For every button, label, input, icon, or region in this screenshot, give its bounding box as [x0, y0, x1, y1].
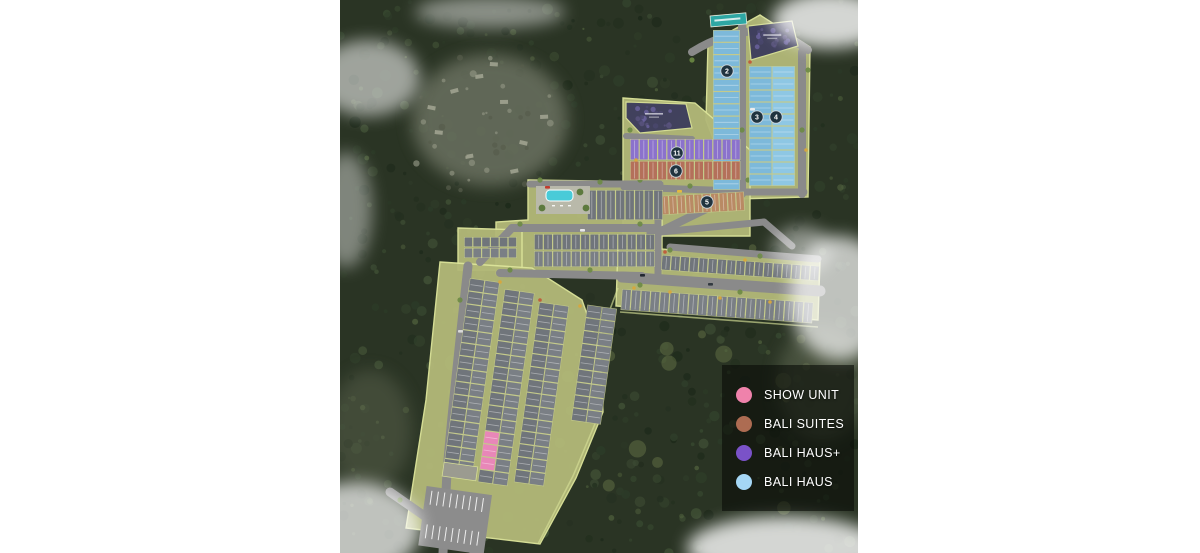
- house-unit: [509, 249, 517, 258]
- street-tree: [667, 247, 672, 252]
- house-unit: [491, 249, 499, 258]
- street-tree: [737, 289, 742, 294]
- block-number-badge: 11: [671, 147, 683, 159]
- shrub: [663, 250, 667, 254]
- legend-label: BALI HAUS+: [764, 446, 841, 460]
- street-tree: [687, 183, 692, 188]
- shrub: [718, 296, 722, 300]
- show-unit-swatch-icon: [736, 387, 752, 403]
- pool-area: [536, 186, 590, 214]
- block-number-badge: 5: [701, 196, 713, 208]
- legend-item-bali-haus-plus: BALI HAUS+: [736, 445, 854, 461]
- row-west-block-row-2: [464, 248, 517, 258]
- row-bali-suites-row: [630, 161, 740, 180]
- house-unit: [509, 238, 517, 247]
- street-tree: [507, 267, 512, 272]
- block-number-badge: 4: [770, 111, 782, 123]
- legend-item-show-unit: SHOW UNIT: [736, 387, 854, 403]
- swimming-pool: [546, 190, 573, 201]
- street-tree: [739, 127, 744, 132]
- legend-label: BALI SUITES: [764, 417, 844, 431]
- street-tree: [805, 67, 810, 72]
- illegible-parcel-label: [763, 34, 781, 36]
- street-tree: [637, 282, 642, 287]
- block-number-label: 6: [674, 168, 678, 175]
- pool-tree: [539, 205, 546, 212]
- legend-label: BALI HAUS: [764, 475, 833, 489]
- house-unit: [465, 249, 473, 258]
- house-unit: [482, 238, 490, 247]
- shrub: [634, 158, 638, 162]
- bali-suites-swatch-icon: [736, 416, 752, 432]
- block-number-badge: 2: [721, 65, 733, 77]
- house-unit: [500, 238, 508, 247]
- block-number-label: 5: [705, 199, 709, 206]
- house-unit: [482, 249, 490, 258]
- street-tree: [627, 127, 632, 132]
- bali-haus-plus-swatch-icon: [736, 445, 752, 461]
- street-tree: [799, 127, 804, 132]
- street-tree: [597, 179, 602, 184]
- shrub: [804, 148, 808, 152]
- car: [750, 108, 755, 111]
- legend-item-bali-haus: BALI HAUS: [736, 474, 854, 490]
- block-number-label: 2: [725, 68, 729, 75]
- street-tree: [517, 221, 522, 226]
- shrub: [668, 290, 672, 294]
- street-tree: [457, 297, 462, 302]
- block-number-badge: 3: [751, 111, 763, 123]
- legend-item-bali-suites: BALI SUITES: [736, 416, 854, 432]
- pool-tree: [583, 205, 590, 212]
- block-number-label: 11: [673, 150, 681, 157]
- row-central-row-1: [534, 234, 655, 250]
- street-tree: [689, 57, 694, 62]
- row-bali-haus-block-right: [772, 66, 795, 186]
- car: [640, 274, 645, 277]
- row-bali-haus-plus-row: [630, 139, 740, 160]
- middle-future-parcel: [626, 102, 692, 133]
- cloud: [772, 226, 832, 274]
- shrub: [743, 258, 747, 262]
- legend-label: SHOW UNIT: [764, 388, 839, 402]
- block-number-label: 3: [755, 114, 759, 121]
- legend-panel: SHOW UNITBALI SUITESBALI HAUS+BALI HAUS: [722, 365, 854, 511]
- pool-tree: [577, 189, 584, 196]
- block-number-label: 4: [774, 114, 778, 121]
- clearing: [412, 54, 568, 186]
- shrub: [768, 300, 772, 304]
- house-unit: [465, 238, 473, 247]
- house-unit: [473, 238, 481, 247]
- shrub: [748, 60, 752, 64]
- house-unit: [473, 249, 481, 258]
- shrub: [538, 298, 542, 302]
- shrub: [632, 286, 636, 290]
- shrub: [578, 304, 582, 308]
- car: [545, 186, 550, 189]
- row-pool-side-row: [587, 190, 663, 220]
- row-central-row-2: [534, 251, 655, 267]
- street-tree: [537, 177, 542, 182]
- illegible-parcel-label: [645, 113, 663, 115]
- bali-haus-swatch-icon: [736, 474, 752, 490]
- car: [580, 229, 585, 232]
- car: [708, 283, 713, 286]
- block-number-badge: 6: [670, 165, 682, 177]
- street-tree: [587, 267, 592, 272]
- street-tree: [637, 221, 642, 226]
- row-bali-haus-block-left: [749, 66, 772, 186]
- street-tree: [757, 253, 762, 258]
- page: { "title": "Residential estate site plan…: [0, 0, 1200, 553]
- car: [677, 190, 682, 193]
- row-west-block-row-1: [464, 237, 517, 247]
- house-unit: [491, 238, 499, 247]
- car: [458, 330, 463, 333]
- house-unit: [500, 249, 508, 258]
- road: [626, 136, 692, 139]
- shrub: [498, 280, 502, 284]
